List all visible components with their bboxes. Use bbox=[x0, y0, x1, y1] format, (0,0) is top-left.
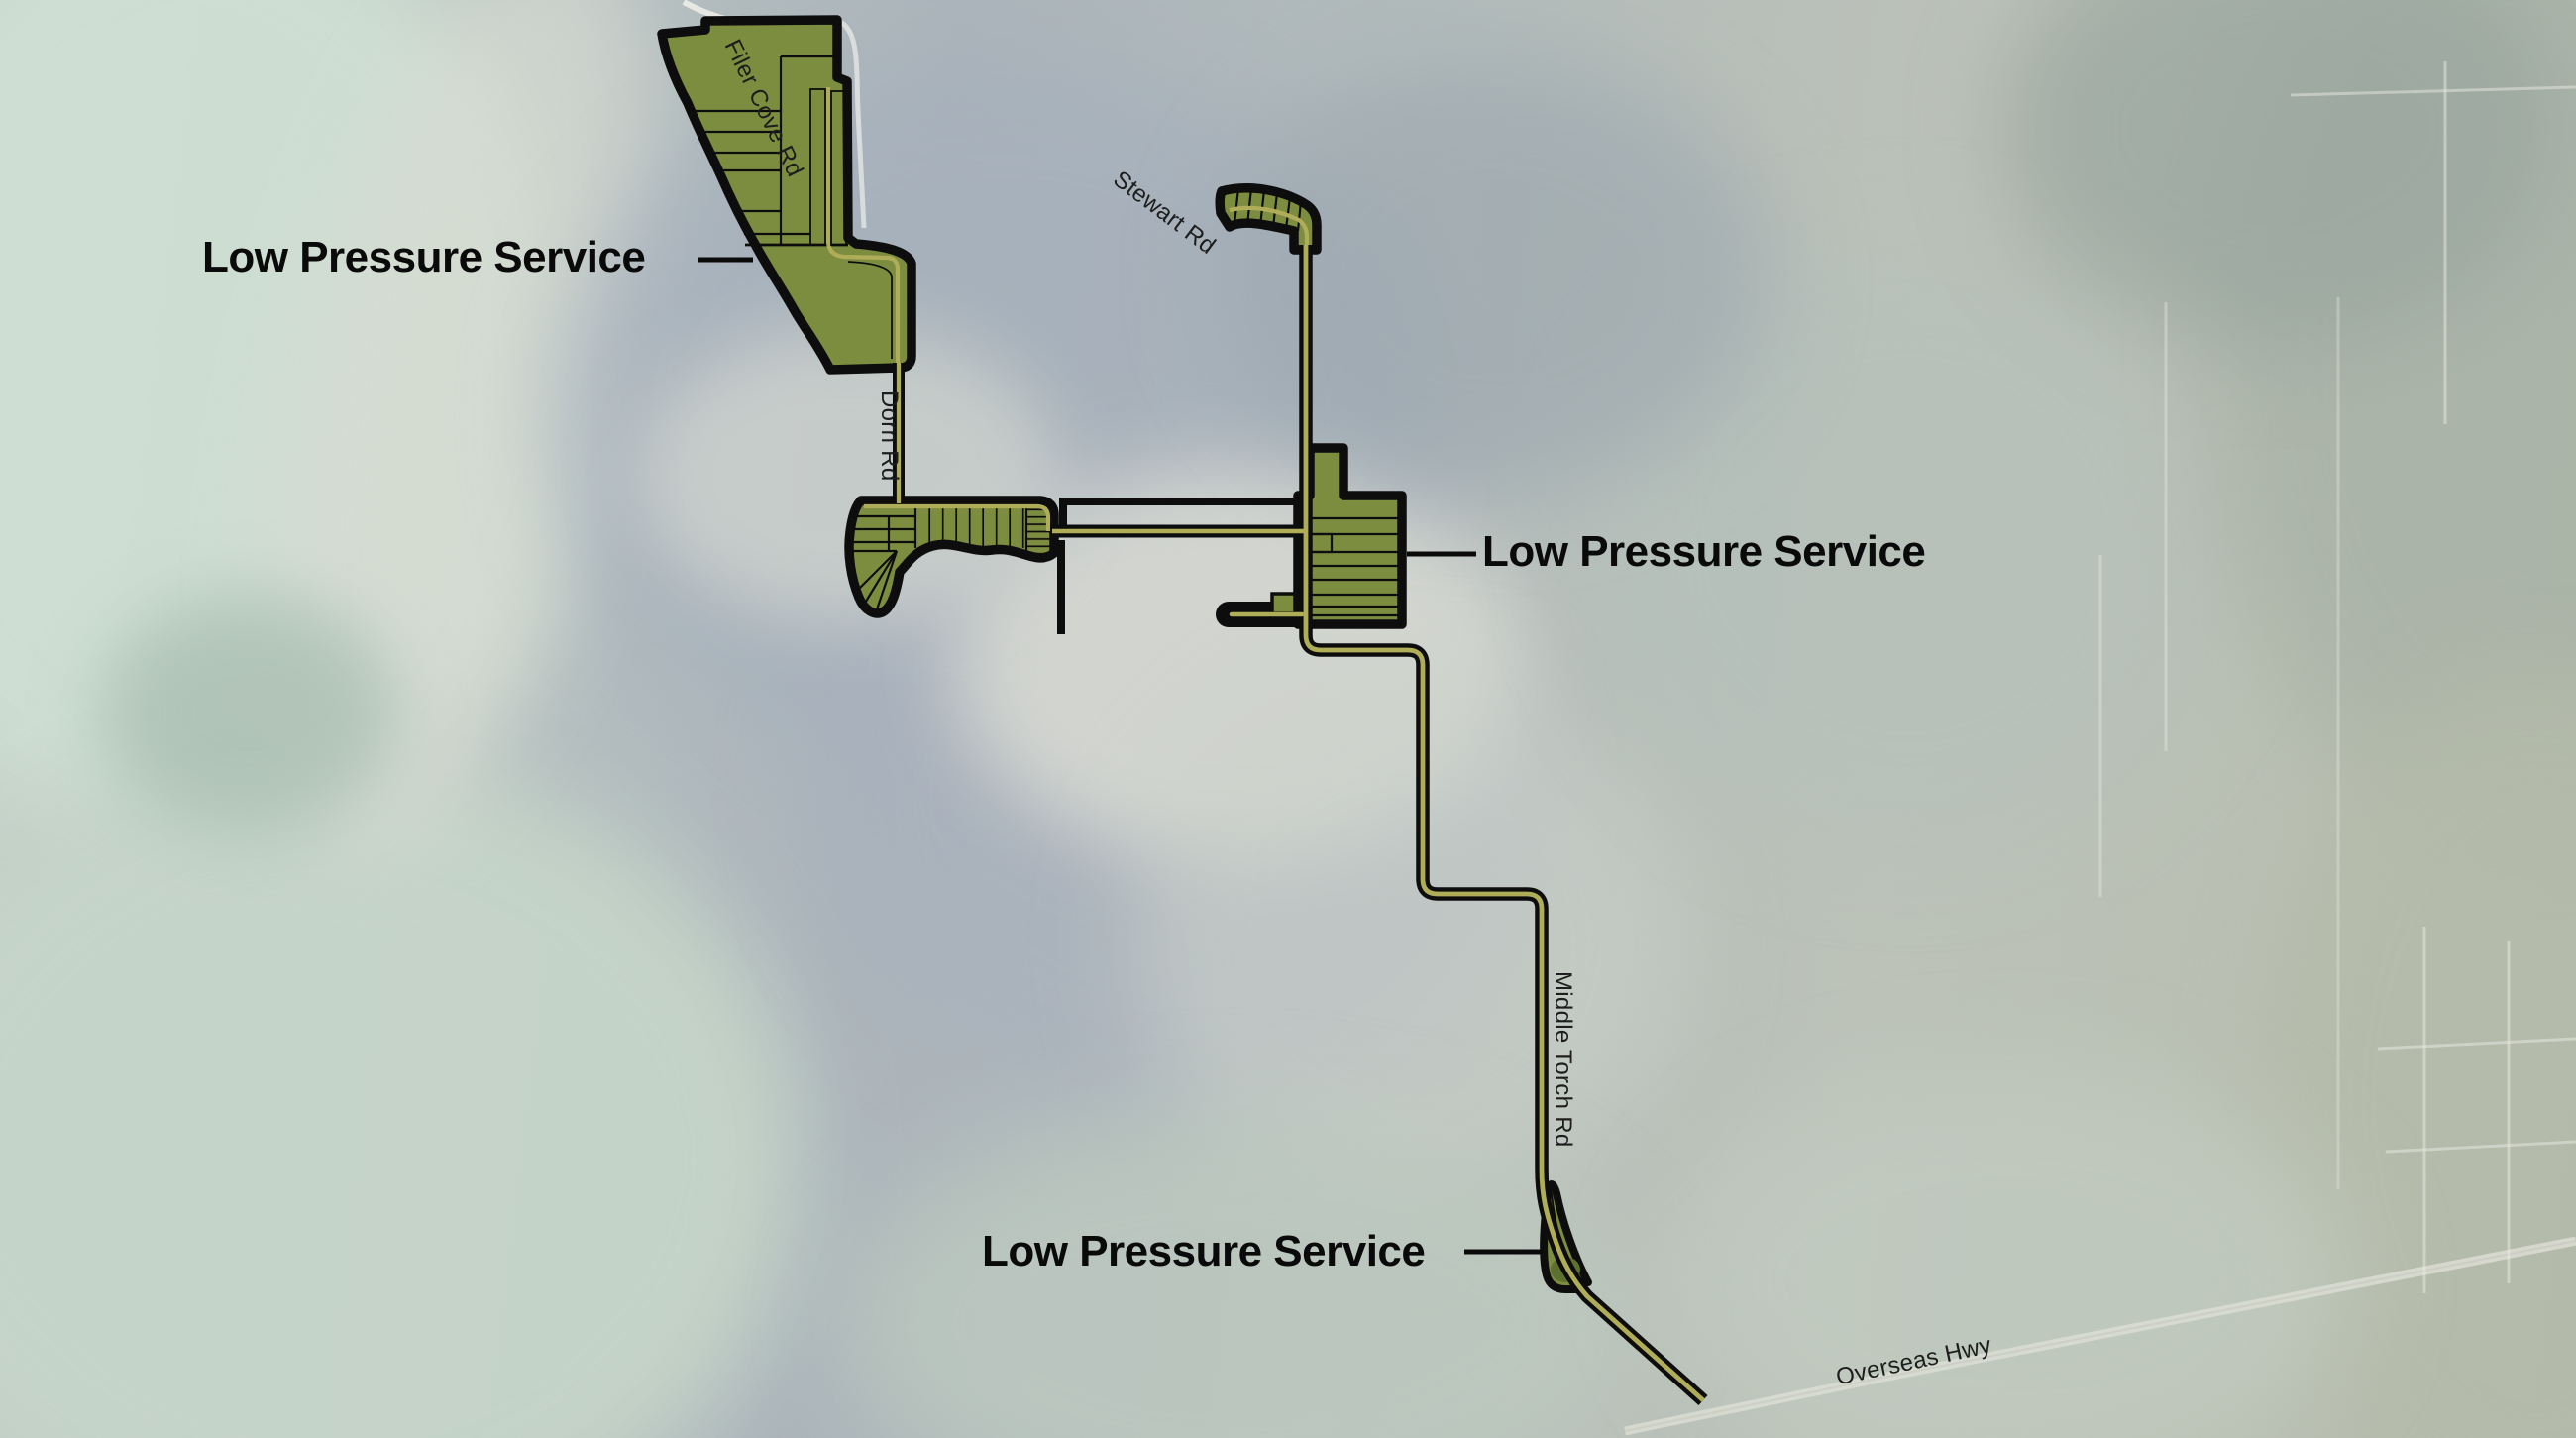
background-roads bbox=[684, 2, 2576, 1431]
map-canvas: Low Pressure Service Low Pressure Servic… bbox=[0, 0, 2576, 1438]
service-area-filer-cove bbox=[662, 20, 912, 370]
map-overlay bbox=[0, 0, 2576, 1438]
label-low-pressure-service-west: Low Pressure Service bbox=[202, 236, 645, 279]
label-middle-torch-rd: Middle Torch Rd bbox=[1550, 971, 1575, 1147]
label-low-pressure-service-middle: Low Pressure Service bbox=[1482, 530, 1925, 574]
label-low-pressure-service-south: Low Pressure Service bbox=[982, 1230, 1425, 1273]
service-area-dorn bbox=[849, 500, 1054, 613]
label-dorn-rd: Dorn Rd bbox=[876, 390, 902, 481]
service-area-middle bbox=[1298, 448, 1402, 624]
service-area-stewart bbox=[1220, 188, 1317, 250]
